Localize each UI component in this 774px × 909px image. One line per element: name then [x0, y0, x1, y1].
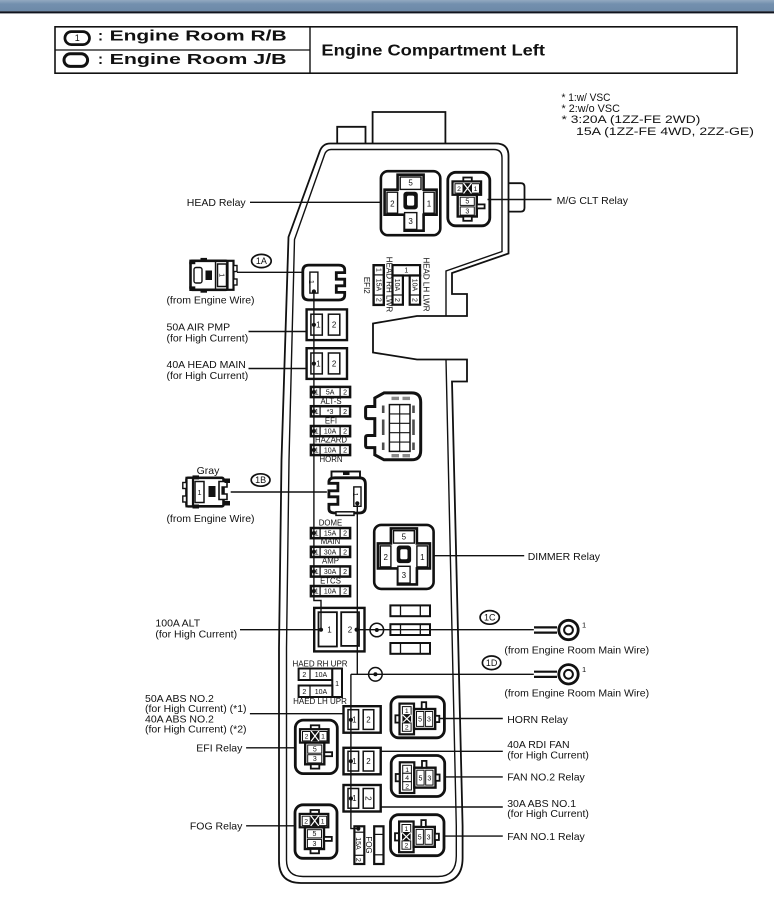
svg-text:DIMMER Relay: DIMMER Relay — [528, 551, 601, 563]
svg-text:2: 2 — [305, 734, 309, 741]
svg-text:2: 2 — [343, 550, 347, 557]
svg-text:2: 2 — [343, 569, 347, 576]
svg-text:(for High Current): (for High Current) — [167, 370, 249, 382]
svg-text:HORN Relay: HORN Relay — [507, 714, 568, 726]
svg-text:Engine Room R/B: Engine Room R/B — [110, 28, 287, 45]
svg-text:10A: 10A — [393, 279, 400, 292]
svg-text:(from Engine Room Main Wire): (from Engine Room Main Wire) — [504, 688, 649, 700]
svg-text:2: 2 — [302, 672, 306, 679]
svg-text:2: 2 — [332, 359, 337, 368]
svg-text:2: 2 — [405, 725, 409, 732]
svg-text:2: 2 — [304, 818, 308, 825]
svg-text:3: 3 — [427, 835, 431, 842]
svg-text::: : — [98, 28, 103, 45]
svg-text:1: 1 — [307, 280, 314, 284]
svg-text:1: 1 — [327, 626, 332, 635]
svg-text:1: 1 — [582, 665, 586, 674]
svg-text:5A: 5A — [326, 390, 335, 397]
svg-text:1: 1 — [316, 359, 321, 368]
svg-text:1: 1 — [404, 268, 408, 275]
svg-text:1C: 1C — [484, 612, 496, 622]
svg-text:Gray: Gray — [197, 465, 221, 477]
svg-text:2: 2 — [410, 298, 417, 302]
svg-text:HAED LH UPR: HAED LH UPR — [293, 697, 347, 706]
svg-text:(from Engine Wire): (from Engine Wire) — [166, 295, 254, 307]
svg-text:2: 2 — [364, 796, 373, 801]
svg-text:5: 5 — [465, 199, 469, 206]
svg-text:5: 5 — [402, 532, 407, 541]
svg-text:1: 1 — [218, 273, 225, 277]
svg-text:ALT-S: ALT-S — [320, 397, 341, 406]
svg-text:15A: 15A — [374, 279, 381, 292]
svg-text:* 3:20A (1ZZ-FE 2WD): * 3:20A (1ZZ-FE 2WD) — [562, 114, 701, 126]
svg-text:2: 2 — [354, 858, 361, 862]
svg-text:(for High Current): (for High Current) — [507, 808, 589, 820]
svg-text:*3: *3 — [327, 409, 334, 416]
svg-text:HAED RH UPR: HAED RH UPR — [292, 659, 347, 668]
svg-text:1: 1 — [335, 681, 339, 688]
svg-text:3: 3 — [427, 717, 431, 724]
svg-text:2: 2 — [374, 298, 381, 302]
svg-text:3: 3 — [465, 208, 469, 215]
svg-text:2: 2 — [343, 390, 347, 397]
svg-text:1: 1 — [474, 186, 478, 193]
svg-text:Engine Compartment Left: Engine Compartment Left — [321, 43, 545, 60]
svg-text:HORN: HORN — [320, 455, 343, 464]
svg-text:5: 5 — [418, 775, 422, 782]
svg-text:1: 1 — [420, 553, 425, 562]
svg-text:1: 1 — [405, 826, 409, 833]
svg-text:5: 5 — [408, 179, 413, 188]
svg-text:1: 1 — [405, 708, 409, 715]
svg-text:3: 3 — [313, 756, 317, 763]
svg-text:1: 1 — [316, 321, 321, 330]
svg-text:3: 3 — [402, 571, 407, 580]
svg-text:2: 2 — [366, 757, 371, 766]
svg-text:1: 1 — [405, 767, 409, 774]
svg-text:EFI Relay: EFI Relay — [196, 742, 243, 754]
svg-text:2: 2 — [405, 843, 409, 850]
svg-text:FAN NO.2 Relay: FAN NO.2 Relay — [507, 771, 585, 783]
svg-text:FAN NO.1 Relay: FAN NO.1 Relay — [507, 831, 585, 843]
svg-text:HEAD LH LWR: HEAD LH LWR — [422, 257, 431, 311]
svg-text:EFI2: EFI2 — [362, 277, 371, 294]
svg-text:(from Engine Wire): (from Engine Wire) — [166, 513, 254, 525]
svg-text:(from Engine Room Main Wire): (from Engine Room Main Wire) — [504, 645, 649, 657]
svg-text:3: 3 — [408, 217, 413, 226]
svg-text:4: 4 — [405, 775, 409, 782]
svg-text:(for High Current) (*2): (for High Current) (*2) — [145, 724, 247, 736]
svg-text:MAIN: MAIN — [321, 537, 341, 546]
svg-text:3: 3 — [313, 841, 317, 848]
svg-text:1: 1 — [427, 199, 432, 208]
svg-text:ETCS: ETCS — [320, 576, 341, 585]
svg-text:HAZARD: HAZARD — [315, 436, 347, 445]
svg-text:FOG Relay: FOG Relay — [190, 820, 243, 832]
svg-text:10A: 10A — [315, 672, 328, 679]
svg-text:DOME: DOME — [319, 518, 342, 527]
svg-text:AMP: AMP — [322, 557, 339, 566]
svg-text:5: 5 — [313, 831, 317, 838]
svg-text:5: 5 — [418, 717, 422, 724]
svg-text:15A: 15A — [354, 837, 361, 850]
svg-text:Engine Room J/B: Engine Room J/B — [110, 51, 287, 68]
svg-text:(for High Current): (for High Current) — [507, 750, 589, 762]
svg-text:(for High Current): (for High Current) — [167, 332, 249, 344]
svg-text:2: 2 — [343, 409, 347, 416]
svg-text:1: 1 — [197, 488, 201, 497]
svg-text:M/G CLT Relay: M/G CLT Relay — [557, 195, 629, 207]
svg-text:1: 1 — [582, 621, 586, 630]
svg-text:10A: 10A — [324, 589, 337, 596]
svg-text:10A: 10A — [410, 279, 417, 292]
svg-text:1: 1 — [321, 818, 325, 825]
svg-text:1D: 1D — [486, 658, 498, 668]
svg-text:2: 2 — [332, 321, 337, 330]
svg-text:2: 2 — [348, 626, 353, 635]
svg-text:2: 2 — [343, 531, 347, 538]
svg-text:10A: 10A — [315, 689, 328, 696]
svg-text:10A: 10A — [324, 448, 337, 455]
svg-text:1A: 1A — [256, 256, 267, 266]
svg-text:2: 2 — [393, 298, 400, 302]
svg-text:2: 2 — [457, 186, 461, 193]
svg-text:1B: 1B — [255, 475, 266, 485]
svg-text:5: 5 — [418, 835, 422, 842]
svg-text:1: 1 — [351, 493, 358, 497]
svg-text:EFI: EFI — [325, 416, 337, 425]
svg-text:HEAD Relay: HEAD Relay — [187, 197, 247, 209]
svg-text:2: 2 — [343, 589, 347, 596]
svg-text:2: 2 — [302, 689, 306, 696]
svg-text:2: 2 — [383, 553, 388, 562]
svg-text:1: 1 — [321, 734, 325, 741]
svg-text:(for High Current): (for High Current) — [155, 629, 237, 641]
svg-text:2: 2 — [343, 448, 347, 455]
svg-text:1: 1 — [374, 268, 381, 272]
svg-text:30A: 30A — [324, 550, 337, 557]
svg-text:15A (1ZZ-FE 4WD, 2ZZ-GE): 15A (1ZZ-FE 4WD, 2ZZ-GE) — [576, 126, 754, 138]
svg-text:30A: 30A — [324, 569, 337, 576]
svg-text:FOG: FOG — [364, 836, 373, 853]
svg-text:2: 2 — [405, 783, 409, 790]
svg-text:1: 1 — [75, 33, 80, 43]
svg-text:2: 2 — [366, 715, 371, 724]
svg-text:2: 2 — [390, 199, 395, 208]
svg-text:3: 3 — [427, 775, 431, 782]
svg-text::: : — [98, 51, 103, 68]
svg-text:5: 5 — [313, 747, 317, 754]
